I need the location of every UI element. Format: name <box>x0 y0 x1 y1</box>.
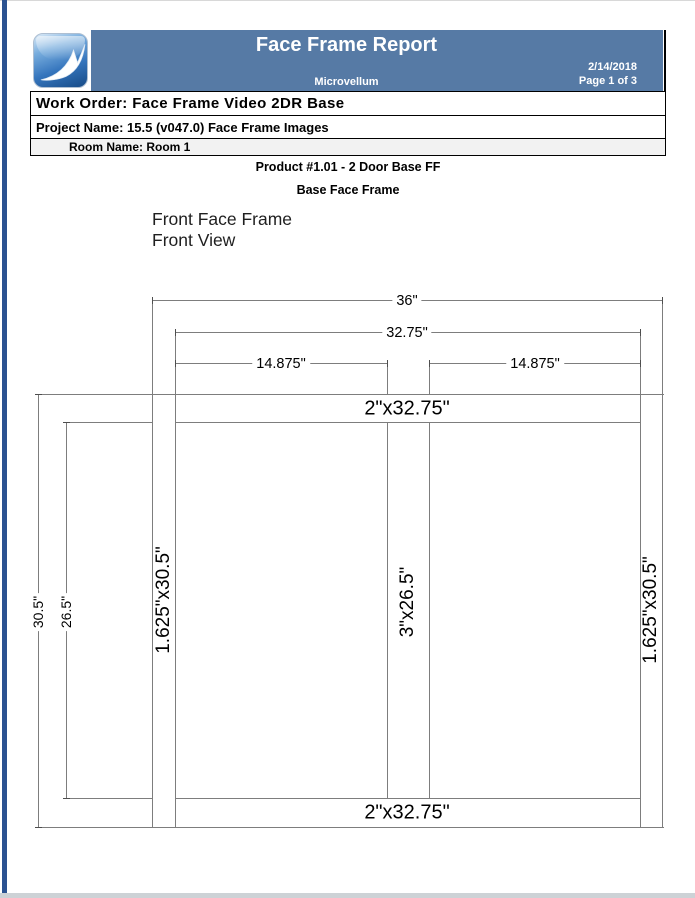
page-top-edge <box>0 0 695 1</box>
center-stile-right-edge <box>429 422 430 799</box>
dim-tick <box>35 394 42 395</box>
dim-tick <box>63 798 70 799</box>
logo-box <box>30 30 91 91</box>
product-title: Product #1.01 - 2 Door Base FF <box>30 160 666 174</box>
dim-tick <box>175 360 176 367</box>
left-stile-label: 1.625"x30.5" <box>153 546 175 654</box>
dim-tick <box>640 360 641 367</box>
page-bottom-edge <box>0 893 695 898</box>
left-accent-bar <box>2 0 7 898</box>
bottom-rail-top-ext <box>66 798 152 799</box>
overall-width-label: 36" <box>392 293 421 309</box>
top-rail-bottom-ext <box>66 422 152 423</box>
project-name-text: Project Name: 15.5 (v047.0) Face Frame I… <box>36 120 329 135</box>
center-stile-label: 3"x26.5" <box>397 567 419 638</box>
frame-top-edge <box>38 394 664 395</box>
work-order-bar: Work Order: Face Frame Video 2DR Base <box>30 91 666 116</box>
left-opening-width-label: 14.875" <box>252 356 310 372</box>
dim-tick <box>662 297 663 304</box>
center-stile-left-ext <box>387 363 388 395</box>
room-name-text: Room Name: Room 1 <box>69 140 190 154</box>
product-subtitle: Base Face Frame <box>30 183 666 197</box>
dim-tick <box>387 360 388 367</box>
frame-right-edge <box>662 300 663 828</box>
right-opening-width-label: 14.875" <box>506 356 564 372</box>
dim-tick <box>152 297 153 304</box>
microvellum-logo-icon <box>33 33 88 88</box>
date-page-block: 2/14/2018 Page 1 of 3 <box>579 60 637 88</box>
bottom-rail-label: 2"x32.75" <box>364 802 449 825</box>
room-name-bar: Room Name: Room 1 <box>30 138 666 156</box>
view-title: Front Face Frame Front View <box>152 209 292 251</box>
company-name: Microvellum <box>30 76 663 88</box>
view-title-line2: Front View <box>152 230 292 251</box>
product-title-block: Product #1.01 - 2 Door Base FF Base Face… <box>30 160 666 197</box>
bottom-rail-top-edge <box>175 798 640 799</box>
right-stile-label: 1.625"x30.5" <box>640 556 662 664</box>
report-title: Face Frame Report <box>30 34 663 57</box>
inner-width-label: 32.75" <box>382 325 431 341</box>
report-page: Face Frame Report Microvellum 2/14/2018 … <box>0 0 695 898</box>
overall-height-label: 30.5" <box>30 593 46 631</box>
top-rail-label: 2"x32.75" <box>364 398 449 421</box>
header-right-border <box>664 30 666 92</box>
top-rail-bottom-edge <box>175 422 640 423</box>
dim-tick <box>640 329 641 336</box>
left-stile-inner-edge <box>175 332 176 828</box>
view-title-line1: Front Face Frame <box>152 209 292 230</box>
center-stile-right-ext <box>429 363 430 395</box>
dim-tick <box>63 422 70 423</box>
dim-tick <box>35 827 42 828</box>
opening-height-label: 26.5" <box>58 593 74 631</box>
dim-tick <box>175 329 176 336</box>
report-date: 2/14/2018 <box>579 60 637 74</box>
center-stile-left-edge <box>387 422 388 799</box>
dim-tick <box>429 360 430 367</box>
work-order-text: Work Order: Face Frame Video 2DR Base <box>36 95 345 112</box>
page-number: Page 1 of 3 <box>579 74 637 88</box>
frame-bottom-edge <box>38 827 664 828</box>
project-name-bar: Project Name: 15.5 (v047.0) Face Frame I… <box>30 115 666 139</box>
report-banner: Face Frame Report Microvellum 2/14/2018 … <box>30 30 663 91</box>
